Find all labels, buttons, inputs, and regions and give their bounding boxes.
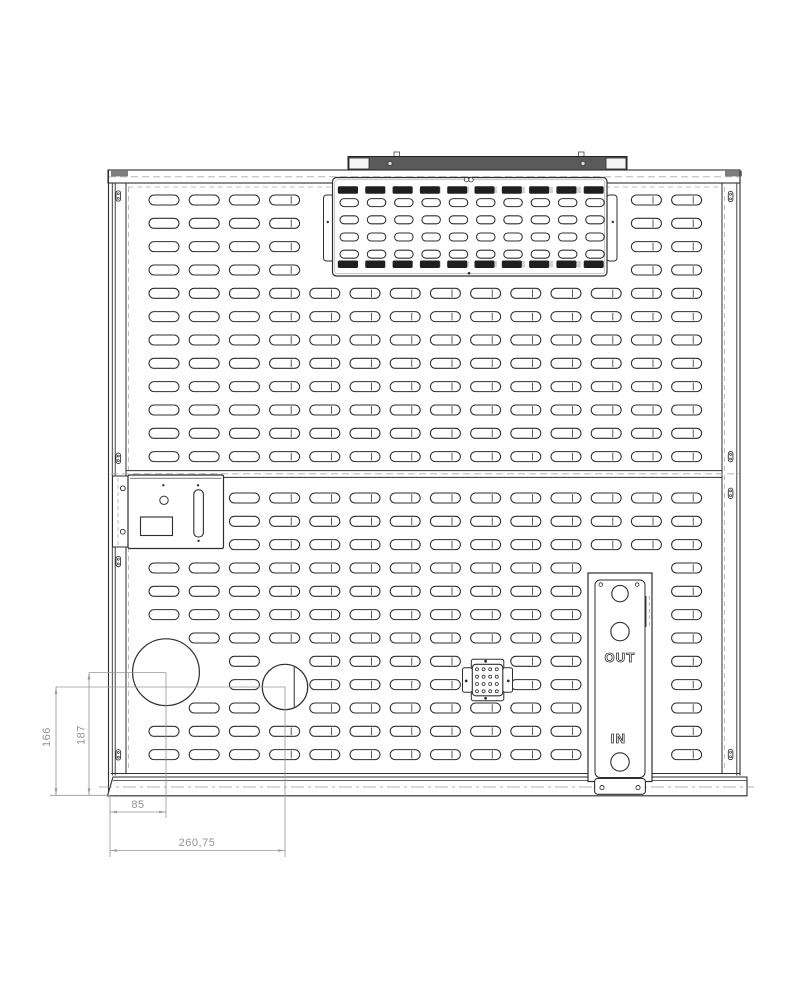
dark-vent-slot <box>529 260 549 268</box>
vent-slot <box>310 358 340 368</box>
vent-slot <box>310 382 340 392</box>
vent-slot <box>471 335 501 345</box>
panel-holes <box>133 639 308 710</box>
vent-slot <box>672 428 702 438</box>
vent-slot <box>340 199 359 207</box>
vent-slot <box>390 312 420 322</box>
vent-slot <box>531 216 550 224</box>
vent-slot <box>430 382 460 392</box>
vent-slot <box>395 233 414 241</box>
vent-slot <box>430 703 460 713</box>
vent-slot <box>430 610 460 620</box>
vent-slot <box>229 218 259 228</box>
vent-slot <box>551 428 581 438</box>
connector-screw-dot <box>507 680 510 683</box>
vent-slot <box>511 312 541 322</box>
vent-slot <box>390 750 420 760</box>
rail-screw-icon <box>388 161 392 165</box>
vent-slot <box>471 493 501 503</box>
vent-slot <box>471 312 501 322</box>
vent-slot <box>471 382 501 392</box>
vent-slot <box>189 726 219 736</box>
vent-slot <box>310 493 340 503</box>
vent-slot <box>270 428 300 438</box>
out-label: OUT <box>604 650 635 665</box>
vent-slot <box>672 680 702 690</box>
vent-slot <box>511 586 541 596</box>
vent-slot <box>631 312 661 322</box>
dark-vent-slot <box>556 186 576 194</box>
vent-slot <box>511 656 541 666</box>
vent-slot <box>551 516 581 526</box>
vent-slot <box>591 288 621 298</box>
vent-slot <box>511 452 541 462</box>
arrow-icon <box>159 811 166 814</box>
vent-slot <box>586 233 605 241</box>
vent-slot <box>189 610 219 620</box>
vent-slot <box>350 633 380 643</box>
vent-slot <box>511 633 541 643</box>
dark-vent-slot <box>338 260 358 268</box>
vent-slot <box>270 288 300 298</box>
vent-slot <box>511 358 541 368</box>
vent-slot <box>189 428 219 438</box>
vent-slot <box>672 750 702 760</box>
dark-vent-slot <box>584 260 604 268</box>
vent-slot <box>631 218 661 228</box>
vent-slot <box>189 195 219 205</box>
inset-bottom-screw-dot <box>468 272 471 275</box>
hinge-hole <box>120 529 125 534</box>
connector-pin <box>495 668 498 671</box>
vent-slot <box>229 335 259 345</box>
control-plate-outline <box>128 475 224 549</box>
vent-slot <box>270 382 300 392</box>
vent-slot <box>390 610 420 620</box>
vent-slot <box>189 242 219 252</box>
vent-slot <box>591 382 621 392</box>
vent-slot <box>551 358 581 368</box>
port-hole-out <box>611 622 629 640</box>
vent-slot <box>149 358 179 368</box>
vent-slot <box>449 199 468 207</box>
vent-slot <box>591 428 621 438</box>
plate-rect-cutout <box>141 517 173 536</box>
dark-vent-slot <box>502 186 522 194</box>
vent-slot <box>449 250 468 258</box>
vent-slot <box>430 656 460 666</box>
vent-slot <box>631 382 661 392</box>
dark-vent-slot <box>475 186 495 194</box>
vent-slot <box>229 656 259 666</box>
dim-label-85: 85 <box>131 799 144 811</box>
vent-slot <box>270 586 300 596</box>
connector-pin <box>476 683 479 686</box>
vent-slot <box>310 586 340 596</box>
vent-slot <box>471 726 501 736</box>
vent-slot <box>672 335 702 345</box>
dark-vent-slot <box>393 186 413 194</box>
vent-slot <box>631 428 661 438</box>
vent-slot <box>310 288 340 298</box>
vent-slot <box>430 428 460 438</box>
dark-vent-slot <box>447 260 467 268</box>
vent-slot <box>350 750 380 760</box>
vent-slot <box>430 726 460 736</box>
vent-slot <box>270 493 300 503</box>
vent-slot <box>390 540 420 550</box>
vent-slot <box>551 312 581 322</box>
dark-vent-slot <box>420 260 440 268</box>
vent-slot <box>471 703 501 713</box>
vent-slot <box>591 335 621 345</box>
vent-slot <box>631 335 661 345</box>
vent-slot <box>189 288 219 298</box>
vent-slot <box>672 358 702 368</box>
vent-slot <box>511 680 541 690</box>
vent-slot <box>471 428 501 438</box>
vent-slot <box>270 563 300 573</box>
vent-slot <box>149 195 179 205</box>
vent-slot <box>229 288 259 298</box>
wing-screw-dot <box>612 221 614 223</box>
vent-slot <box>367 199 386 207</box>
arrow-icon <box>55 788 58 795</box>
dark-vent-slot <box>365 260 385 268</box>
top-rail <box>348 152 627 171</box>
vent-slot <box>672 265 702 275</box>
port-plate: OUT IN <box>588 573 652 794</box>
vent-slot <box>367 233 386 241</box>
vent-slot <box>350 335 380 345</box>
vent-slot <box>511 288 541 298</box>
connector-pin <box>495 690 498 693</box>
vent-slot <box>471 540 501 550</box>
vent-slot <box>149 610 179 620</box>
arrow-icon <box>88 673 91 680</box>
vent-slot <box>350 428 380 438</box>
vent-slot <box>189 358 219 368</box>
vent-slot <box>471 610 501 620</box>
vent-slot <box>149 750 179 760</box>
vent-slot <box>551 452 581 462</box>
connector-screw-dot <box>484 697 487 700</box>
vent-slot <box>631 540 661 550</box>
vent-slot <box>149 586 179 596</box>
dark-vent-slot <box>447 186 467 194</box>
vent-slot <box>631 358 661 368</box>
vent-slot <box>551 335 581 345</box>
vent-slot <box>390 563 420 573</box>
vent-slot <box>511 405 541 415</box>
vent-slot <box>229 265 259 275</box>
vent-slot <box>350 656 380 666</box>
arrow-icon <box>55 687 58 694</box>
vent-slot <box>471 288 501 298</box>
vent-slot <box>229 703 259 713</box>
vent-slot <box>310 312 340 322</box>
dim-label-166: 166 <box>41 727 53 747</box>
vent-slot <box>229 452 259 462</box>
vent-slot <box>390 288 420 298</box>
connector-pin <box>495 675 498 678</box>
vent-slot <box>229 540 259 550</box>
vent-slot <box>531 250 550 258</box>
vent-slot <box>471 586 501 596</box>
vent-slot <box>310 656 340 666</box>
arrow-icon <box>110 849 117 852</box>
vent-slot <box>270 195 300 205</box>
connector-screw-dot <box>465 680 468 683</box>
dark-vent-slot <box>502 260 522 268</box>
vent-slot <box>430 312 460 322</box>
vent-slot <box>189 382 219 392</box>
vent-slot <box>229 610 259 620</box>
vent-slot <box>390 335 420 345</box>
vent-slot <box>340 216 359 224</box>
vent-slot <box>471 563 501 573</box>
vent-slot <box>390 493 420 503</box>
vent-slot <box>390 405 420 415</box>
vent-slot <box>504 216 523 224</box>
vent-slot <box>189 703 219 713</box>
vent-slot <box>586 199 605 207</box>
vent-slot <box>310 516 340 526</box>
plate-screw-dot <box>197 484 199 486</box>
vent-slot <box>672 586 702 596</box>
vent-slot <box>390 586 420 596</box>
vent-slot <box>430 288 460 298</box>
vent-slot <box>591 312 621 322</box>
vent-slot <box>149 218 179 228</box>
connector-square <box>463 659 513 700</box>
vent-slot <box>558 199 577 207</box>
vent-slot <box>350 382 380 392</box>
vent-slot <box>229 312 259 322</box>
vent-slot <box>430 335 460 345</box>
vent-slot <box>189 218 219 228</box>
vent-slot <box>390 428 420 438</box>
connector-pin <box>489 683 492 686</box>
vent-slot <box>390 656 420 666</box>
vent-slot <box>367 216 386 224</box>
vent-slot <box>551 633 581 643</box>
vent-slot <box>672 610 702 620</box>
connector-pin <box>495 683 498 686</box>
vent-slot <box>310 405 340 415</box>
base-strip <box>99 774 754 796</box>
plate-vertical-slot <box>194 490 204 537</box>
vent-slot <box>270 516 300 526</box>
vent-slot <box>591 405 621 415</box>
vent-slot <box>511 610 541 620</box>
vent-slot <box>672 195 702 205</box>
vent-slot <box>270 265 300 275</box>
vent-slot <box>189 633 219 643</box>
vent-slot <box>390 633 420 643</box>
vent-slot <box>449 216 468 224</box>
vent-slot <box>422 233 441 241</box>
connector-screw-dot <box>484 660 487 663</box>
dark-vent-slot <box>393 260 413 268</box>
vent-slot <box>149 265 179 275</box>
dark-vent-slot <box>420 186 440 194</box>
vent-slot <box>672 218 702 228</box>
vent-slot <box>430 633 460 643</box>
vent-slot <box>471 405 501 415</box>
connector-pin <box>489 690 492 693</box>
vent-slot <box>672 452 702 462</box>
dark-vent-slot <box>475 260 495 268</box>
vent-slot <box>631 242 661 252</box>
vent-slot <box>229 563 259 573</box>
dim-label-260-75: 260,75 <box>179 837 216 849</box>
hinge-outline <box>113 476 129 547</box>
vent-slot <box>270 633 300 643</box>
vent-slot <box>350 586 380 596</box>
rail-screw-icon <box>581 161 585 165</box>
vent-slot <box>551 680 581 690</box>
vent-slot <box>531 199 550 207</box>
vent-slot <box>511 516 541 526</box>
vent-slot <box>229 405 259 415</box>
vent-slot <box>149 452 179 462</box>
left-hinge-bracket <box>113 476 129 547</box>
vent-slot <box>551 656 581 666</box>
vent-slot <box>586 250 605 258</box>
vent-slot <box>430 358 460 368</box>
vent-slot <box>310 610 340 620</box>
vent-slot <box>189 586 219 596</box>
vent-slot <box>558 233 577 241</box>
vent-slot <box>430 680 460 690</box>
vent-slot <box>310 680 340 690</box>
vent-slot <box>449 233 468 241</box>
vent-slot <box>551 540 581 550</box>
vent-slot <box>672 493 702 503</box>
vent-slot <box>672 242 702 252</box>
vent-slot <box>471 750 501 760</box>
dark-vent-slot <box>529 186 549 194</box>
vent-slot <box>586 216 605 224</box>
vent-slot <box>189 335 219 345</box>
vent-slot <box>551 726 581 736</box>
inset-top-screw-icon <box>464 178 468 182</box>
vent-slot <box>350 703 380 713</box>
vent-slot <box>229 195 259 205</box>
vent-slot <box>390 452 420 462</box>
vent-slot <box>591 358 621 368</box>
vent-slot <box>471 516 501 526</box>
vent-slot <box>149 312 179 322</box>
vent-slot <box>229 428 259 438</box>
vent-slot <box>672 382 702 392</box>
vent-slot <box>672 563 702 573</box>
vent-slot <box>189 265 219 275</box>
vent-slot <box>551 563 581 573</box>
inset-top-screw-icon <box>469 178 473 182</box>
vent-slot <box>430 540 460 550</box>
vent-slot <box>390 358 420 368</box>
port-hole-top <box>612 585 628 601</box>
vent-slot <box>149 335 179 345</box>
vent-slot <box>672 656 702 666</box>
vent-slot <box>511 563 541 573</box>
vent-slot <box>310 726 340 736</box>
vent-slot <box>631 493 661 503</box>
arrow-icon <box>278 849 285 852</box>
vent-slot <box>511 493 541 503</box>
vent-slot <box>551 610 581 620</box>
vent-slot <box>350 493 380 503</box>
plate-round-hole <box>160 496 168 504</box>
vent-slot <box>189 452 219 462</box>
vent-slot <box>340 250 359 258</box>
vent-slot <box>350 358 380 368</box>
vent-slot <box>350 726 380 736</box>
vent-slot <box>471 358 501 368</box>
vent-slot <box>340 233 359 241</box>
connector-pin <box>476 675 479 678</box>
vent-slot <box>149 563 179 573</box>
vent-slot <box>551 750 581 760</box>
vent-slot <box>511 335 541 345</box>
vent-slot <box>390 516 420 526</box>
vent-slot <box>270 405 300 415</box>
vent-slot <box>229 750 259 760</box>
inset-wing-right <box>607 195 618 261</box>
port-plate-screw <box>599 583 603 587</box>
vent-slot <box>551 405 581 415</box>
vent-slot <box>149 382 179 392</box>
vent-slot <box>310 540 340 550</box>
vent-slot <box>672 726 702 736</box>
connector-pin <box>476 690 479 693</box>
vent-slot <box>551 493 581 503</box>
inset-vent-bracket <box>324 178 618 277</box>
vent-slot <box>310 335 340 345</box>
vent-slot <box>149 242 179 252</box>
vent-slot <box>471 633 501 643</box>
vent-slot <box>229 680 259 690</box>
vent-slot <box>395 250 414 258</box>
vent-slot <box>672 405 702 415</box>
vent-slot <box>270 540 300 550</box>
vent-slot <box>511 428 541 438</box>
vent-slot <box>229 242 259 252</box>
port-hole-in <box>611 753 629 771</box>
vent-slot <box>672 633 702 643</box>
vent-slot <box>551 382 581 392</box>
arrow-icon <box>88 788 91 795</box>
vent-slot <box>367 250 386 258</box>
plate-screw-dot <box>197 540 199 542</box>
vent-slot <box>672 288 702 298</box>
vent-slot <box>471 452 501 462</box>
vent-slot <box>672 540 702 550</box>
vent-slot <box>350 312 380 322</box>
vent-slot <box>430 586 460 596</box>
vent-slot <box>591 452 621 462</box>
vent-slot <box>511 540 541 550</box>
vent-slot <box>350 563 380 573</box>
vent-slot <box>229 516 259 526</box>
connector-pin <box>489 668 492 671</box>
dark-vent-slot <box>556 260 576 268</box>
vent-slot <box>631 405 661 415</box>
vent-slot <box>229 633 259 643</box>
technical-drawing-page: OUT IN 166 187 85 260,75 <box>0 0 800 1000</box>
